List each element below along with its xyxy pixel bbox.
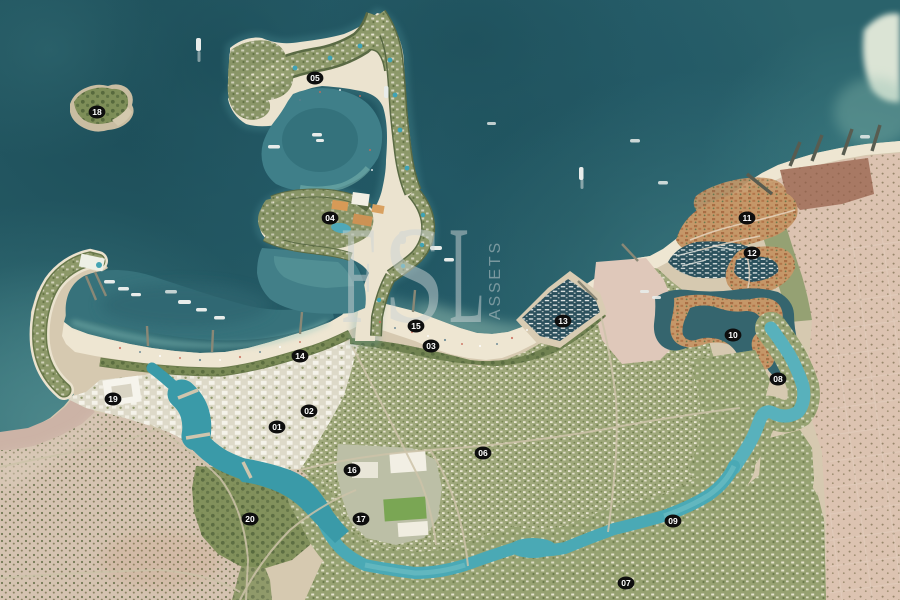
svg-text:L: L (449, 198, 485, 353)
svg-text:15: 15 (411, 321, 421, 331)
svg-text:13: 13 (558, 316, 568, 326)
svg-text:01: 01 (272, 422, 282, 432)
svg-text:12: 12 (747, 248, 757, 258)
svg-text:03: 03 (426, 341, 436, 351)
svg-text:04: 04 (325, 213, 335, 223)
svg-text:16: 16 (347, 465, 357, 475)
svg-text:05: 05 (310, 73, 320, 83)
svg-text:09: 09 (668, 516, 678, 526)
svg-text:08: 08 (773, 374, 783, 384)
svg-text:18: 18 (92, 107, 102, 117)
svg-text:11: 11 (743, 213, 752, 223)
svg-text:07: 07 (621, 578, 631, 588)
svg-text:20: 20 (245, 514, 255, 524)
svg-text:17: 17 (356, 514, 366, 524)
svg-text:14: 14 (295, 351, 305, 361)
svg-text:F: F (341, 198, 376, 353)
svg-text:06: 06 (478, 448, 488, 458)
svg-text:02: 02 (304, 406, 314, 416)
svg-text:ASSETS: ASSETS (487, 240, 504, 320)
svg-text:10: 10 (728, 330, 738, 340)
svg-text:19: 19 (108, 394, 118, 404)
